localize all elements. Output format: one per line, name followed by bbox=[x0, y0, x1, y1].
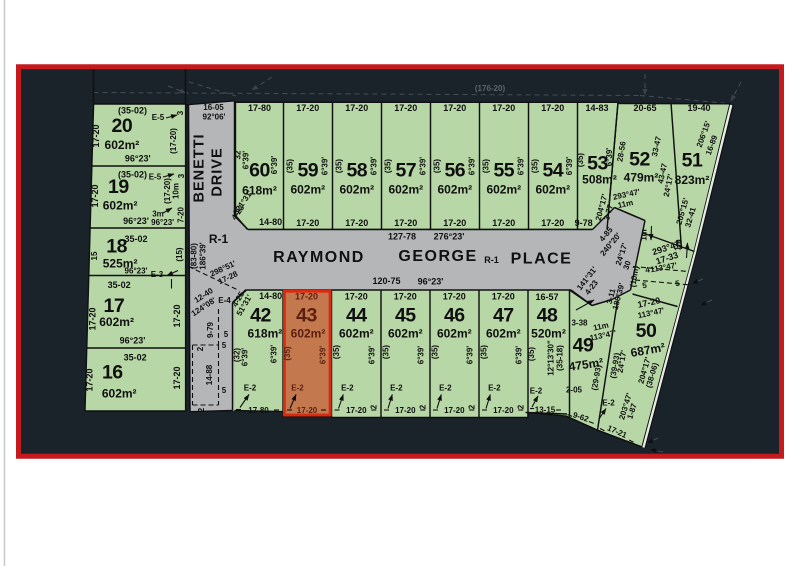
svg-text:(15): (15) bbox=[175, 247, 184, 262]
svg-text:14-80: 14-80 bbox=[259, 217, 282, 227]
svg-text:18: 18 bbox=[106, 236, 127, 258]
svg-text:602m²: 602m² bbox=[486, 327, 521, 341]
svg-text:602m²: 602m² bbox=[291, 327, 326, 341]
svg-text:50: 50 bbox=[636, 320, 657, 342]
svg-text:602m²: 602m² bbox=[290, 183, 325, 197]
svg-text:6°39': 6°39' bbox=[368, 346, 377, 365]
svg-text:3: 3 bbox=[177, 173, 186, 178]
svg-text:(35): (35) bbox=[335, 159, 344, 174]
svg-text:E-2: E-2 bbox=[291, 384, 304, 393]
svg-text:E-2: E-2 bbox=[390, 384, 403, 393]
svg-text:46: 46 bbox=[444, 305, 465, 327]
svg-text:E-5: E-5 bbox=[149, 173, 162, 182]
svg-text:3: 3 bbox=[176, 110, 185, 115]
svg-text:520m²: 520m² bbox=[531, 327, 566, 341]
svg-text:54: 54 bbox=[542, 160, 563, 182]
svg-text:10m: 10m bbox=[172, 183, 181, 199]
svg-text:(35): (35) bbox=[286, 159, 295, 174]
svg-text:6°39': 6°39' bbox=[242, 151, 251, 170]
svg-text:17-20: 17-20 bbox=[443, 103, 466, 113]
svg-text:17-20: 17-20 bbox=[91, 124, 101, 147]
svg-text:96°23': 96°23' bbox=[125, 267, 148, 276]
svg-text:17-20: 17-20 bbox=[395, 406, 416, 415]
svg-text:17-20: 17-20 bbox=[85, 368, 95, 391]
svg-text:96°23': 96°23' bbox=[151, 218, 174, 227]
svg-text:(35): (35) bbox=[433, 159, 442, 174]
svg-text:602m²: 602m² bbox=[437, 327, 472, 341]
svg-text:17-20: 17-20 bbox=[492, 292, 515, 302]
svg-text:479m²: 479m² bbox=[624, 171, 659, 185]
svg-text:DRIVE: DRIVE bbox=[210, 147, 226, 196]
svg-text:6°39': 6°39' bbox=[419, 157, 428, 176]
svg-text:602m²: 602m² bbox=[105, 138, 140, 152]
svg-text:GEORGE: GEORGE bbox=[398, 248, 477, 265]
svg-text:E-4: E-4 bbox=[218, 296, 231, 305]
svg-text:17-20: 17-20 bbox=[345, 103, 368, 113]
svg-text:52: 52 bbox=[629, 149, 650, 171]
svg-text:6°39': 6°39' bbox=[241, 348, 250, 367]
svg-text:(35): (35) bbox=[384, 159, 393, 174]
svg-text:14-80: 14-80 bbox=[259, 291, 282, 301]
svg-text:R-1: R-1 bbox=[484, 255, 499, 265]
svg-text:1m: 1m bbox=[674, 239, 683, 251]
svg-text:20-65: 20-65 bbox=[633, 103, 656, 113]
svg-text:14-83: 14-83 bbox=[585, 103, 608, 113]
svg-text:5: 5 bbox=[222, 386, 227, 395]
svg-text:55: 55 bbox=[493, 160, 514, 182]
svg-text:(35): (35) bbox=[531, 159, 540, 174]
svg-text:17-20: 17-20 bbox=[394, 292, 417, 302]
svg-text:(35): (35) bbox=[283, 346, 292, 361]
svg-text:120-75: 120-75 bbox=[372, 276, 400, 286]
svg-text:45: 45 bbox=[395, 305, 416, 327]
svg-text:58: 58 bbox=[346, 160, 367, 182]
svg-text:602m²: 602m² bbox=[99, 315, 134, 329]
svg-text:(35): (35) bbox=[482, 159, 491, 174]
svg-text:17: 17 bbox=[104, 295, 125, 317]
svg-text:35-02: 35-02 bbox=[124, 234, 147, 244]
svg-text:602m²: 602m² bbox=[437, 183, 472, 197]
svg-text:6°39': 6°39' bbox=[319, 346, 328, 365]
svg-text:15: 15 bbox=[90, 251, 99, 260]
svg-text:44: 44 bbox=[346, 305, 367, 327]
svg-text:17-20: 17-20 bbox=[172, 304, 182, 327]
svg-text:35-02: 35-02 bbox=[108, 280, 131, 290]
svg-text:43: 43 bbox=[296, 305, 317, 327]
svg-text:17-20: 17-20 bbox=[492, 218, 515, 228]
svg-text:602m²: 602m² bbox=[102, 387, 137, 401]
svg-text:6°39': 6°39' bbox=[370, 157, 379, 176]
svg-text:602m²: 602m² bbox=[535, 183, 570, 197]
svg-text:17-20: 17-20 bbox=[172, 366, 182, 389]
svg-text:17-20: 17-20 bbox=[296, 218, 319, 228]
svg-text:2: 2 bbox=[197, 407, 206, 412]
svg-text:602m²: 602m² bbox=[388, 183, 423, 197]
svg-text:7-20: 7-20 bbox=[177, 206, 186, 223]
svg-text:2-05: 2-05 bbox=[566, 386, 583, 395]
svg-text:(35): (35) bbox=[382, 345, 391, 360]
svg-text:35-02: 35-02 bbox=[124, 353, 147, 363]
svg-text:(35): (35) bbox=[431, 345, 440, 360]
svg-text:6°39': 6°39' bbox=[517, 157, 526, 176]
svg-text:2: 2 bbox=[370, 404, 379, 409]
svg-text:6°39': 6°39' bbox=[468, 157, 477, 176]
svg-text:6°39': 6°39' bbox=[565, 157, 574, 176]
svg-text:2: 2 bbox=[517, 404, 526, 409]
svg-text:602m²: 602m² bbox=[103, 199, 138, 213]
svg-text:E-2: E-2 bbox=[341, 384, 354, 393]
svg-text:5: 5 bbox=[222, 341, 227, 350]
svg-text:17-20: 17-20 bbox=[492, 103, 515, 113]
svg-text:2: 2 bbox=[196, 346, 205, 351]
svg-text:(35): (35) bbox=[480, 345, 489, 360]
svg-text:59: 59 bbox=[297, 160, 318, 182]
svg-text:19: 19 bbox=[108, 176, 129, 198]
svg-text:823m²: 823m² bbox=[675, 173, 710, 187]
svg-text:16-57: 16-57 bbox=[535, 292, 558, 302]
svg-text:602m²: 602m² bbox=[339, 183, 374, 197]
svg-text:96°23': 96°23' bbox=[418, 277, 444, 287]
svg-text:6°39': 6°39' bbox=[270, 156, 279, 175]
svg-text:(83-80): (83-80) bbox=[190, 243, 199, 269]
svg-text:3m: 3m bbox=[152, 210, 164, 219]
svg-text:6°39': 6°39' bbox=[417, 346, 426, 365]
svg-text:1m: 1m bbox=[640, 229, 649, 241]
svg-text:17-80: 17-80 bbox=[248, 406, 269, 415]
svg-text:17-20: 17-20 bbox=[541, 218, 564, 228]
svg-text:96°23': 96°23' bbox=[123, 216, 149, 226]
svg-text:9-78: 9-78 bbox=[575, 218, 593, 228]
svg-text:17-20: 17-20 bbox=[443, 218, 466, 228]
svg-text:57: 57 bbox=[395, 160, 416, 182]
svg-text:2: 2 bbox=[468, 404, 477, 409]
svg-text:6°39': 6°39' bbox=[466, 346, 475, 365]
svg-text:276°23': 276°23' bbox=[434, 232, 465, 242]
svg-text:49: 49 bbox=[573, 335, 594, 357]
svg-text:BENETTI: BENETTI bbox=[192, 133, 208, 202]
svg-text:186°39': 186°39' bbox=[199, 242, 208, 269]
svg-text:6°39': 6°39' bbox=[605, 148, 614, 167]
svg-text:16: 16 bbox=[102, 362, 123, 384]
svg-text:E-5: E-5 bbox=[152, 113, 165, 122]
svg-text:17-20: 17-20 bbox=[87, 307, 97, 330]
svg-text:E-3: E-3 bbox=[151, 270, 164, 279]
svg-text:PLACE: PLACE bbox=[511, 251, 573, 268]
svg-text:618m²: 618m² bbox=[248, 327, 283, 341]
svg-text:16-05: 16-05 bbox=[203, 103, 224, 112]
svg-text:(35): (35) bbox=[527, 347, 536, 362]
svg-text:96°23': 96°23' bbox=[120, 336, 146, 346]
svg-text:602m²: 602m² bbox=[388, 327, 423, 341]
svg-text:17-20: 17-20 bbox=[443, 292, 466, 302]
svg-text:E-2: E-2 bbox=[530, 387, 543, 396]
svg-text:17-20: 17-20 bbox=[541, 103, 564, 113]
svg-text:51: 51 bbox=[682, 150, 703, 172]
svg-text:17-20: 17-20 bbox=[346, 406, 367, 415]
svg-text:47: 47 bbox=[493, 305, 514, 327]
svg-text:(35-02): (35-02) bbox=[118, 106, 147, 116]
svg-text:17-20: 17-20 bbox=[345, 292, 368, 302]
svg-text:3-38: 3-38 bbox=[571, 319, 588, 328]
svg-text:2: 2 bbox=[419, 404, 428, 409]
svg-text:602m²: 602m² bbox=[486, 183, 521, 197]
svg-text:17-20: 17-20 bbox=[90, 184, 100, 207]
svg-text:E-2: E-2 bbox=[439, 384, 452, 393]
svg-text:17-20: 17-20 bbox=[394, 103, 417, 113]
svg-text:14-88: 14-88 bbox=[205, 364, 214, 385]
svg-text:RAYMOND: RAYMOND bbox=[273, 249, 365, 266]
svg-text:5: 5 bbox=[224, 330, 229, 339]
svg-text:E-2: E-2 bbox=[602, 399, 615, 408]
svg-text:42: 42 bbox=[250, 305, 271, 327]
svg-text:6°39': 6°39' bbox=[515, 346, 524, 365]
svg-text:E-2: E-2 bbox=[244, 384, 257, 393]
svg-text:17-80: 17-80 bbox=[248, 103, 271, 113]
svg-text:(17-20): (17-20) bbox=[169, 128, 178, 154]
svg-text:56: 56 bbox=[444, 160, 465, 182]
svg-text:(35): (35) bbox=[576, 153, 585, 168]
svg-text:17-20: 17-20 bbox=[345, 218, 368, 228]
svg-text:96°23': 96°23' bbox=[125, 154, 151, 164]
svg-text:508m²: 508m² bbox=[582, 173, 617, 187]
svg-text:R-1: R-1 bbox=[209, 232, 229, 246]
svg-text:13-15: 13-15 bbox=[535, 406, 556, 415]
svg-text:6°39': 6°39' bbox=[321, 157, 330, 176]
svg-text:E-2: E-2 bbox=[488, 384, 501, 393]
svg-text:17-20: 17-20 bbox=[297, 406, 318, 415]
svg-text:60: 60 bbox=[249, 160, 270, 182]
svg-text:17-20: 17-20 bbox=[296, 103, 319, 113]
svg-text:(35-18): (35-18) bbox=[556, 345, 565, 371]
svg-text:(176-20): (176-20) bbox=[475, 84, 506, 93]
svg-text:20: 20 bbox=[112, 115, 133, 137]
svg-text:(35): (35) bbox=[332, 345, 341, 360]
svg-text:9-79: 9-79 bbox=[206, 321, 215, 338]
svg-text:127-78: 127-78 bbox=[388, 232, 416, 242]
svg-text:602m²: 602m² bbox=[339, 327, 374, 341]
svg-text:17-20: 17-20 bbox=[295, 292, 318, 302]
svg-text:19-40: 19-40 bbox=[687, 103, 710, 113]
svg-text:17-20: 17-20 bbox=[394, 218, 417, 228]
svg-text:6°39': 6°39' bbox=[270, 345, 279, 364]
svg-text:17-20: 17-20 bbox=[493, 406, 514, 415]
svg-text:92°06': 92°06' bbox=[203, 113, 226, 122]
svg-text:12°13'30": 12°13'30" bbox=[547, 340, 556, 376]
svg-text:17-20: 17-20 bbox=[444, 406, 465, 415]
svg-text:48: 48 bbox=[537, 305, 558, 327]
